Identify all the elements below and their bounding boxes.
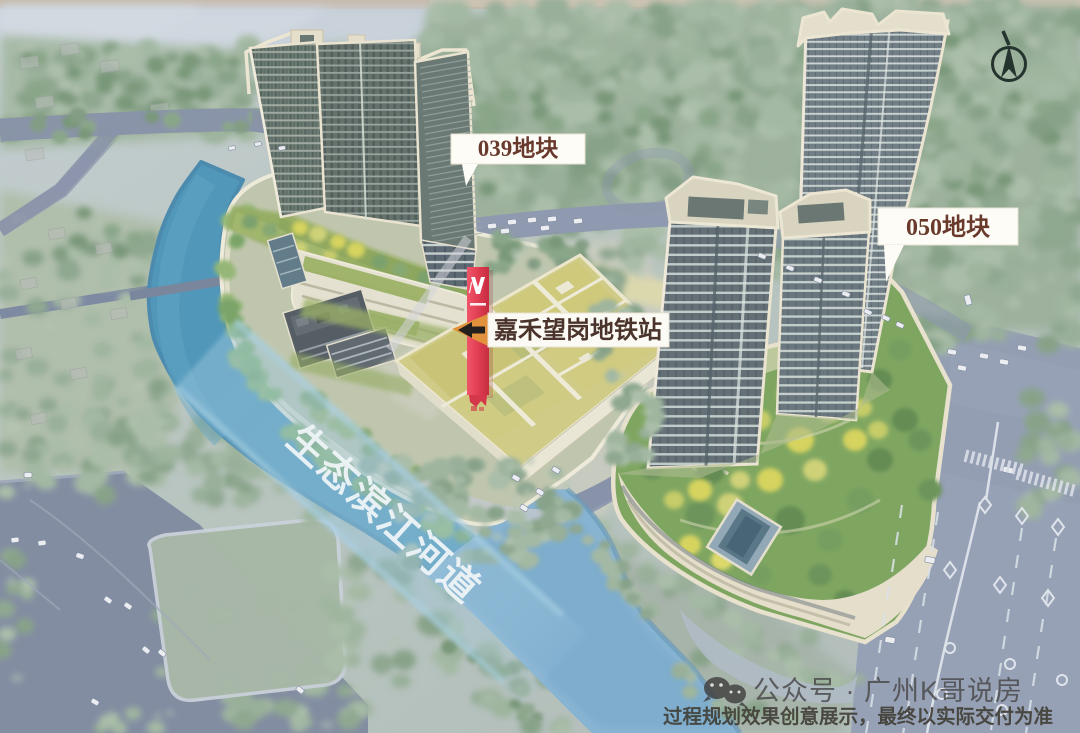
svg-text:039地块: 039地块 <box>478 136 559 161</box>
svg-text:050地块: 050地块 <box>906 214 990 241</box>
svg-text:过程规划效果创意展示，最终以实际交付为准: 过程规划效果创意展示，最终以实际交付为准 <box>663 705 1053 728</box>
svg-text:嘉禾望岗地铁站: 嘉禾望岗地铁站 <box>494 316 662 344</box>
svg-text:公众号 · 广州K哥说房: 公众号 · 广州K哥说房 <box>753 676 1023 706</box>
